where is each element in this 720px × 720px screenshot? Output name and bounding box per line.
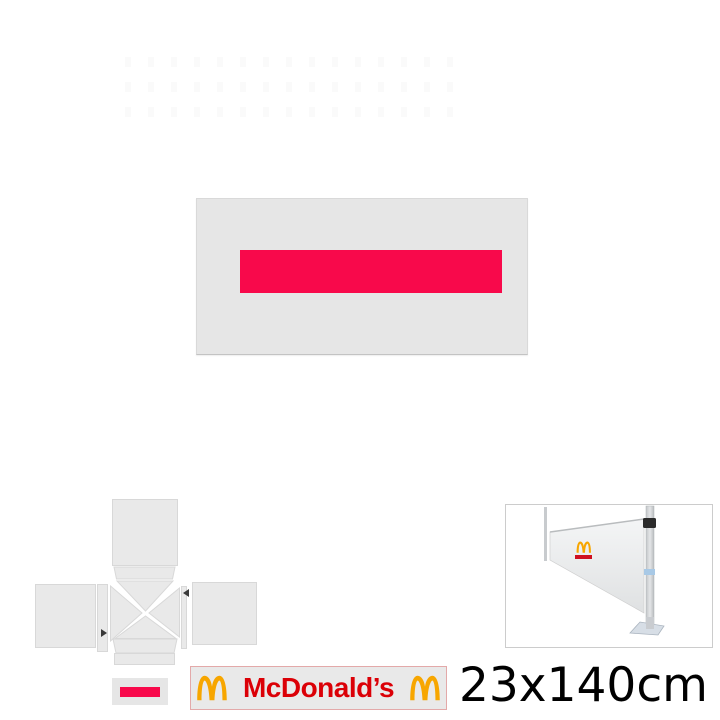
watermark-dot [424,82,430,92]
arches-left-icon [196,670,228,706]
watermark-dot [286,57,292,67]
tent-valance-top [114,567,175,579]
brand-name-label: McDonald’s [243,672,394,704]
tent-panel-left [36,585,96,648]
size-label: 23x140cm [459,661,719,710]
watermark-dot [125,57,131,67]
watermark-dot [355,82,361,92]
watermark-dot [148,57,154,67]
watermark-dot [194,57,200,67]
tent-pole-left [544,507,547,561]
watermark-dot [401,107,407,117]
watermark-dot [401,57,407,67]
watermark-dot [194,107,200,117]
pole-strap [644,569,655,575]
half-wall-banner [550,519,644,613]
watermark-dot [125,107,131,117]
watermark-dot [263,82,269,92]
pole-foot [646,617,654,629]
tent-strip-bottom [115,654,175,665]
watermark-dot [125,82,131,92]
watermark-dot [286,82,292,92]
watermark-dot [424,57,430,67]
watermark-dot [424,107,430,117]
tent-strip-right [182,587,187,649]
watermark-dot [355,57,361,67]
watermark-dot [378,82,384,92]
watermark-dot [240,107,246,117]
product-photo-thumbnail[interactable] [505,504,713,648]
brand-logo-panel[interactable]: McDonald’s [190,666,447,710]
banner-logo-text [575,555,592,559]
watermark-dot [447,57,453,67]
watermark-dot [332,82,338,92]
design-swatch-thumbnail[interactable] [112,678,168,705]
watermark-dot [171,57,177,67]
watermark-dot [332,57,338,67]
watermark-dot [240,82,246,92]
tent-panel-right [193,583,257,645]
watermark-dot [263,107,269,117]
watermark-dot [171,107,177,117]
tent-strip-left [98,585,108,652]
watermark-dot-pattern [125,57,470,132]
tent-valance-bottom [113,639,177,653]
watermark-dot [286,107,292,117]
watermark-dot [240,57,246,67]
watermark-dot [378,57,384,67]
tent-panels [36,500,257,665]
watermark-dot [194,82,200,92]
watermark-dot [217,57,223,67]
design-canvas[interactable] [196,198,528,355]
watermark-dot [171,82,177,92]
watermark-dot [309,82,315,92]
watermark-dot [309,57,315,67]
watermark-dot [309,107,315,117]
watermark-dot [447,82,453,92]
half-wall-photo [506,505,712,647]
pole-clamp [643,518,656,528]
watermark-dot [378,107,384,117]
watermark-dot [447,107,453,117]
arches-right-icon [409,670,441,706]
watermark-dot [263,57,269,67]
swatch-stripe [120,687,160,697]
watermark-dot [355,107,361,117]
watermark-dot [401,82,407,92]
watermark-dot [148,82,154,92]
watermark-dot [217,107,223,117]
watermark-dot [148,107,154,117]
watermark-dot [217,82,223,92]
tent-unfold-diagram [30,492,265,672]
tent-panel-top [113,500,178,566]
watermark-dot [332,107,338,117]
print-stripe[interactable] [240,250,502,293]
